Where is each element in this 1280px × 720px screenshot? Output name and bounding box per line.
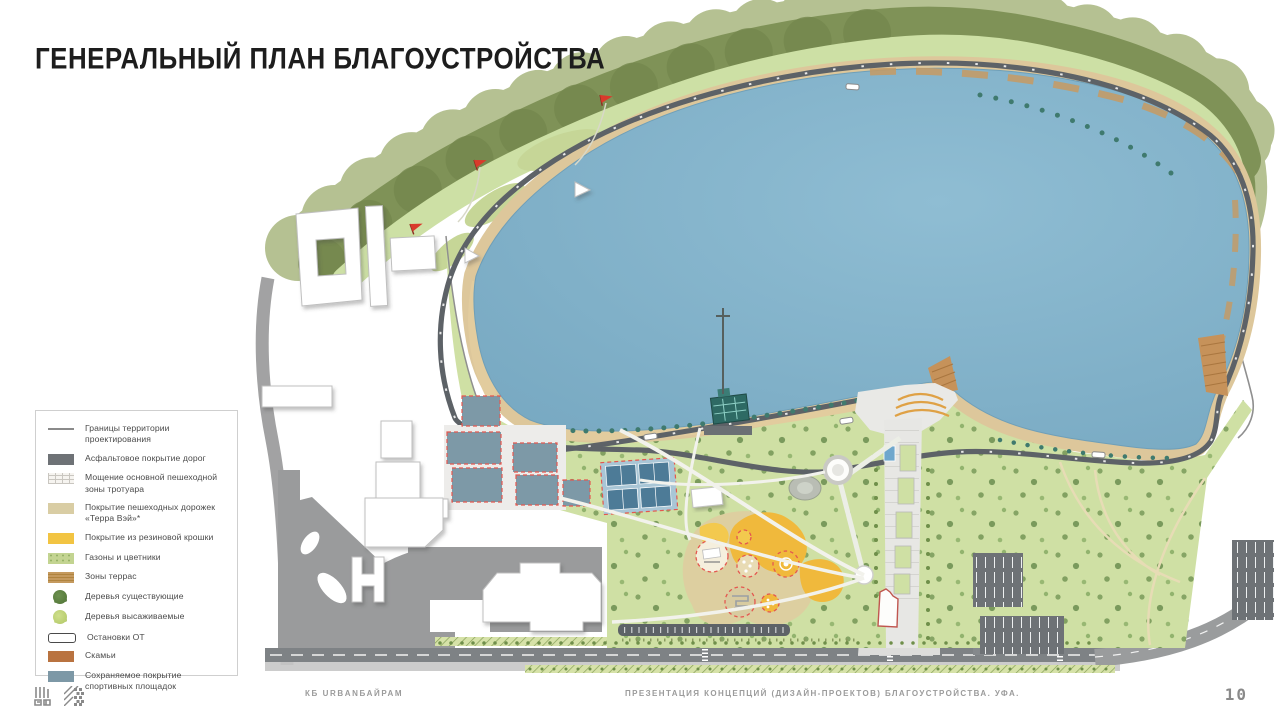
legend-swatch-busstop xyxy=(48,633,76,643)
presentation-caption: ПРЕЗЕНТАЦИЯ КОНЦЕПЦИЙ (ДИЗАЙН-ПРОЕКТОВ) … xyxy=(625,689,1020,698)
legend-item-rubber: Покрытие из резиновой крошки xyxy=(48,532,227,544)
legend-item-tree-existing: Деревья существующие xyxy=(48,591,227,604)
legend-swatch-terrace xyxy=(48,572,74,583)
legend-item-lawn: Газоны и цветники xyxy=(48,552,227,564)
legend-item-terrace: Зоны террас xyxy=(48,571,227,583)
legend-box: Границы территории проектирования Асфаль… xyxy=(35,410,238,676)
ufa-pattern-logo xyxy=(64,686,84,706)
legend-swatch-terraway xyxy=(48,503,74,514)
footer-logos xyxy=(33,686,84,706)
planted-tree-icon xyxy=(48,610,74,624)
legend-swatch-rubber xyxy=(48,533,74,544)
studio-credit: КБ URBANБАЙРАМ xyxy=(305,689,403,698)
legend-item-busstop: Остановки ОТ xyxy=(48,632,227,643)
legend-swatch-asphalt xyxy=(48,454,74,465)
footer: КБ URBANБАЙРАМ ПРЕЗЕНТАЦИЯ КОНЦЕПЦИЙ (ДИ… xyxy=(0,674,1280,720)
page-title: ГЕНЕРАЛЬНЫЙ ПЛАН БЛАГОУСТРОЙСТВА xyxy=(35,42,605,76)
legend-swatch-bench xyxy=(48,651,74,662)
legend-item-paving: Мощение основной пешеходной зоны тротуар… xyxy=(48,472,227,494)
legend-item-boundary: Границы территории проектирования xyxy=(48,423,227,445)
legend-swatch-lawn xyxy=(48,553,74,564)
legend-item-tree-planted: Деревья высаживаемые xyxy=(48,611,227,624)
dom-rf-logo xyxy=(33,686,53,706)
existing-tree-icon xyxy=(48,590,74,604)
legend-swatch-paving xyxy=(48,473,74,484)
legend-item-asphalt: Асфальтовое покрытие дорог xyxy=(48,453,227,465)
legend-swatch-boundary-line xyxy=(48,428,74,430)
page-number: 10 xyxy=(1225,685,1248,704)
legend-item-terraway: Покрытие пешеходных дорожек «Терра Вэй»* xyxy=(48,502,227,524)
legend-item-bench: Скамьи xyxy=(48,650,227,662)
slide: ГЕНЕРАЛЬНЫЙ ПЛАН БЛАГОУСТРОЙСТВА Границы… xyxy=(0,0,1280,720)
